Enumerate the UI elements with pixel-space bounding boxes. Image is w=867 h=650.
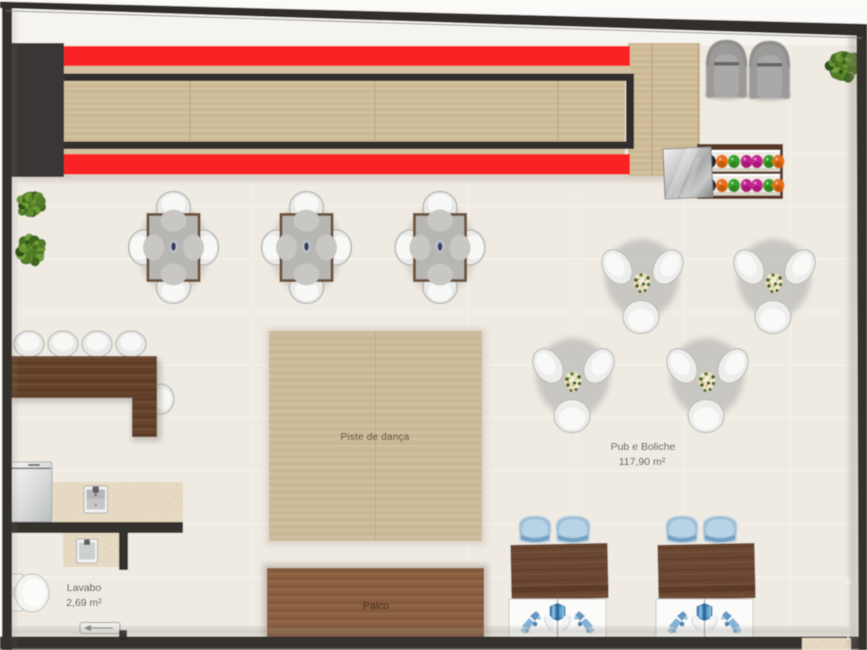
- svg-text:2,69 m²: 2,69 m²: [66, 597, 102, 609]
- svg-text:Palco: Palco: [363, 600, 389, 612]
- svg-text:Lavabo: Lavabo: [67, 582, 102, 594]
- svg-text:117,90 m²: 117,90 m²: [619, 456, 666, 468]
- svg-text:Pub e Boliche: Pub e Boliche: [611, 441, 676, 453]
- svg-text:Piste de dança: Piste de dança: [341, 432, 410, 443]
